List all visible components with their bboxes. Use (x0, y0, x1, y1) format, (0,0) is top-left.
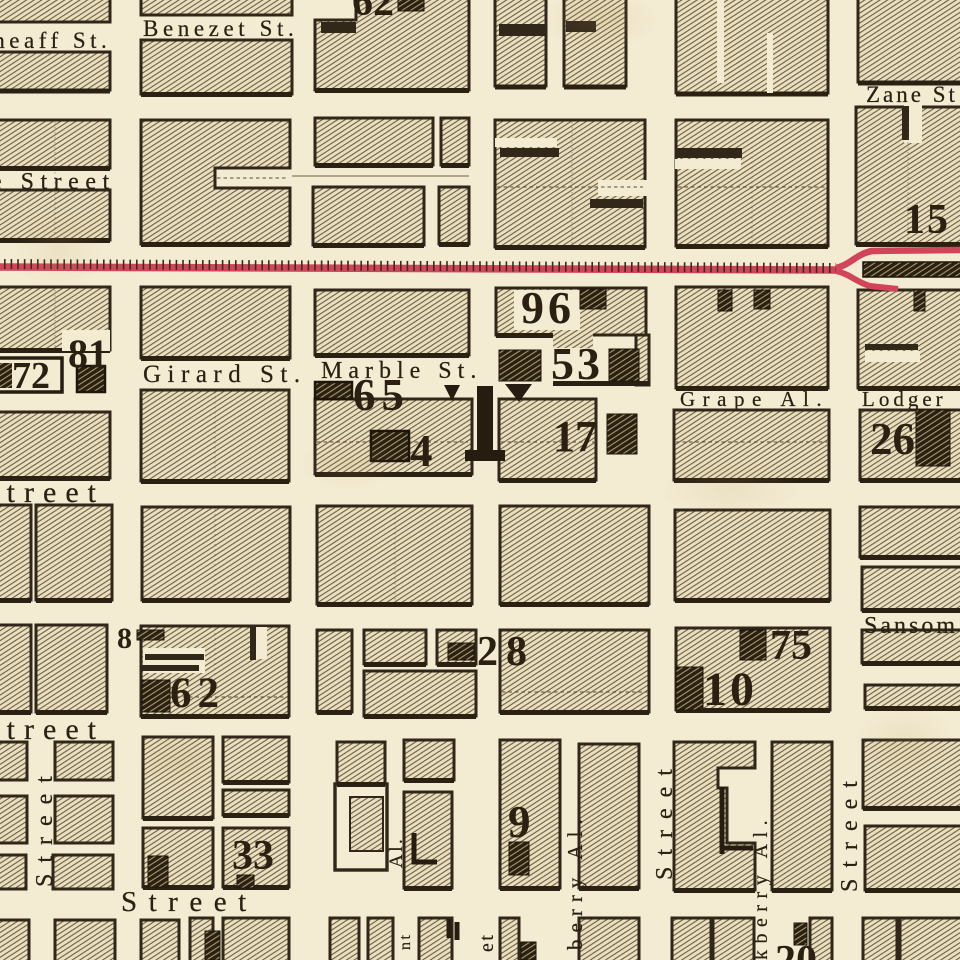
svg-text:Street: Street (837, 770, 863, 892)
svg-text:62: 62 (170, 670, 225, 717)
svg-text:Street: Street (121, 886, 258, 918)
svg-text:10: 10 (703, 663, 757, 716)
svg-text:20: 20 (775, 938, 817, 960)
svg-text:kberry Al.: kberry Al. (750, 814, 772, 960)
svg-text:72: 72 (12, 355, 50, 397)
svg-text:Al.: Al. (386, 837, 407, 868)
svg-text:Grape Al.: Grape Al. (680, 387, 829, 411)
svg-text:Street: Street (0, 476, 105, 509)
svg-text:15: 15 (904, 197, 950, 243)
svg-text:berry Al.: berry Al. (563, 812, 587, 950)
svg-text:9: 9 (508, 797, 531, 847)
svg-text:Street: Street (652, 758, 678, 880)
svg-text:17: 17 (553, 412, 597, 461)
svg-text:Girard St.: Girard St. (143, 361, 307, 388)
svg-text:28: 28 (477, 629, 535, 675)
svg-text:26: 26 (870, 414, 915, 464)
svg-text:et: et (476, 933, 498, 952)
svg-text:62: 62 (352, 0, 394, 25)
svg-text:Street: Street (32, 765, 58, 887)
svg-text:Lodger: Lodger (862, 387, 947, 411)
svg-text:Street: Street (0, 713, 105, 746)
svg-text:65: 65 (353, 370, 410, 420)
svg-text:75: 75 (770, 623, 812, 669)
svg-text:Zane St: Zane St (866, 82, 958, 107)
svg-text:e Street: e Street (0, 169, 116, 195)
svg-text:Sheaff St.: Sheaff St. (0, 28, 111, 53)
svg-text:Sansom: Sansom (864, 613, 958, 639)
svg-text:96: 96 (521, 282, 575, 333)
svg-text:8: 8 (117, 622, 132, 655)
svg-text:53: 53 (551, 338, 603, 389)
svg-text:4: 4 (410, 426, 433, 476)
svg-text:33: 33 (232, 833, 274, 879)
svg-text:81: 81 (68, 331, 108, 376)
svg-text:nt: nt (397, 933, 414, 950)
svg-text:Benezet St.: Benezet St. (143, 16, 298, 41)
